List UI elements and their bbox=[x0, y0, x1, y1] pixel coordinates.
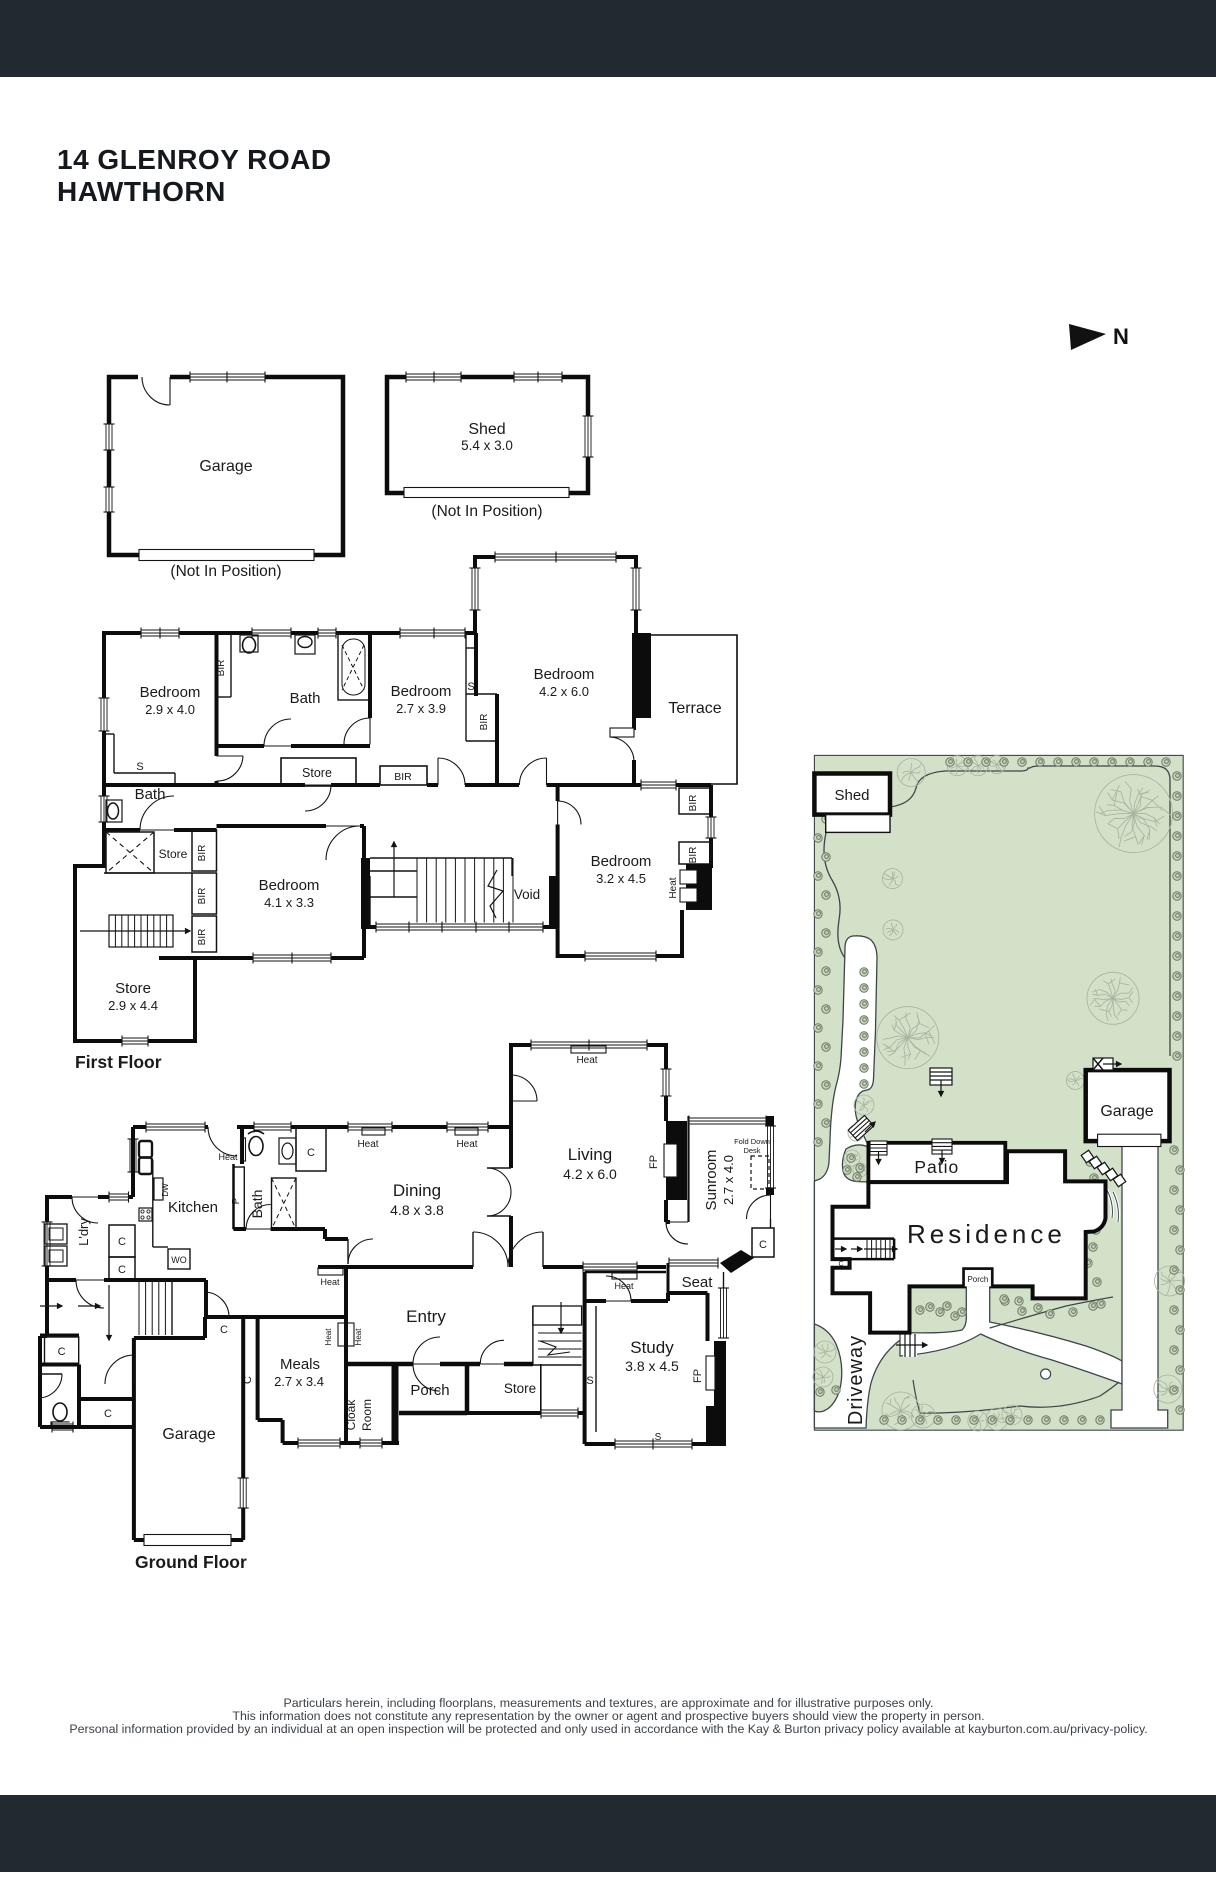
svg-text:Void: Void bbox=[514, 887, 540, 902]
svg-text:Heat: Heat bbox=[320, 1277, 340, 1287]
svg-text:Bedroom: Bedroom bbox=[591, 853, 652, 870]
svg-text:2.9 x 4.4: 2.9 x 4.4 bbox=[108, 998, 158, 1013]
svg-text:BIR: BIR bbox=[216, 660, 227, 677]
svg-text:Kitchen: Kitchen bbox=[168, 1199, 218, 1216]
svg-text:Seat: Seat bbox=[682, 1274, 714, 1291]
svg-text:Store: Store bbox=[302, 766, 332, 780]
svg-text:Driveway: Driveway bbox=[845, 1335, 867, 1425]
svg-text:First Floor: First Floor bbox=[75, 1052, 162, 1072]
svg-text:This information does not cons: This information does not constitute any… bbox=[232, 1709, 984, 1723]
svg-text:Garage: Garage bbox=[1100, 1103, 1153, 1120]
svg-text:4.8 x 3.8: 4.8 x 3.8 bbox=[390, 1202, 444, 1218]
svg-text:C: C bbox=[118, 1236, 126, 1248]
svg-text:Porch: Porch bbox=[967, 1275, 988, 1284]
svg-text:WO: WO bbox=[171, 1255, 187, 1265]
svg-text:C: C bbox=[838, 1261, 843, 1268]
svg-text:(Not In Position): (Not In Position) bbox=[170, 563, 281, 580]
svg-text:5.4 x 3.0: 5.4 x 3.0 bbox=[461, 438, 513, 453]
svg-text:2.7 x 3.4: 2.7 x 3.4 bbox=[274, 1374, 324, 1389]
svg-text:S: S bbox=[655, 1432, 662, 1443]
svg-text:Bedroom: Bedroom bbox=[140, 684, 201, 701]
svg-text:C: C bbox=[307, 1147, 315, 1159]
svg-text:Porch: Porch bbox=[410, 1382, 449, 1399]
svg-text:C: C bbox=[220, 1324, 228, 1336]
svg-text:BIR: BIR bbox=[197, 845, 208, 862]
svg-text:3.8 x 4.5: 3.8 x 4.5 bbox=[625, 1358, 679, 1374]
svg-text:4.2 x 6.0: 4.2 x 6.0 bbox=[563, 1166, 617, 1182]
svg-text:14 GLENROY ROAD: 14 GLENROY ROAD bbox=[57, 144, 332, 175]
svg-text:BIR: BIR bbox=[197, 929, 208, 946]
svg-text:Heat: Heat bbox=[614, 1281, 634, 1291]
svg-text:Heat: Heat bbox=[357, 1139, 378, 1150]
svg-text:Meals: Meals bbox=[280, 1356, 320, 1373]
svg-text:DW: DW bbox=[161, 1183, 170, 1197]
svg-text:Sunroom: Sunroom bbox=[703, 1150, 720, 1211]
svg-text:S: S bbox=[467, 681, 474, 693]
svg-text:2.9 x 4.0: 2.9 x 4.0 bbox=[145, 702, 195, 717]
svg-text:BIR: BIR bbox=[197, 888, 208, 905]
svg-text:FP: FP bbox=[692, 1369, 704, 1383]
svg-text:Garage: Garage bbox=[162, 1426, 215, 1443]
svg-text:Bedroom: Bedroom bbox=[534, 666, 595, 683]
svg-text:Heat: Heat bbox=[324, 1328, 333, 1346]
svg-text:BIR: BIR bbox=[479, 714, 490, 731]
svg-text:4.1 x 3.3: 4.1 x 3.3 bbox=[264, 895, 314, 910]
svg-text:Desk: Desk bbox=[743, 1146, 760, 1155]
svg-text:3.2 x 4.5: 3.2 x 4.5 bbox=[596, 871, 646, 886]
svg-text:HAWTHORN: HAWTHORN bbox=[57, 176, 226, 207]
svg-text:Living: Living bbox=[568, 1145, 612, 1164]
svg-text:BIR: BIR bbox=[688, 795, 699, 812]
svg-text:FP: FP bbox=[648, 1155, 660, 1169]
svg-text:Entry: Entry bbox=[406, 1307, 446, 1326]
svg-text:S: S bbox=[136, 761, 143, 773]
svg-text:Personal information provided: Personal information provided by an indi… bbox=[69, 1722, 1147, 1736]
svg-text:Ground Floor: Ground Floor bbox=[135, 1552, 247, 1572]
svg-text:Heat: Heat bbox=[668, 877, 679, 898]
svg-text:Bedroom: Bedroom bbox=[391, 683, 452, 700]
svg-text:Dining: Dining bbox=[393, 1181, 441, 1200]
svg-text:Shed: Shed bbox=[834, 787, 869, 804]
svg-text:(Not In Position): (Not In Position) bbox=[431, 503, 542, 520]
svg-text:Room: Room bbox=[360, 1399, 374, 1431]
svg-text:BIR: BIR bbox=[394, 771, 412, 783]
svg-text:C: C bbox=[759, 1239, 767, 1251]
svg-text:Particulars herein, including: Particulars herein, including floorplans… bbox=[284, 1696, 934, 1710]
svg-text:L'dry: L'dry bbox=[76, 1218, 91, 1246]
svg-text:Study: Study bbox=[630, 1338, 674, 1357]
svg-text:Terrace: Terrace bbox=[668, 700, 721, 717]
svg-text:2.7 x 3.9: 2.7 x 3.9 bbox=[396, 701, 446, 716]
svg-text:C: C bbox=[104, 1408, 112, 1420]
svg-text:Fold Down: Fold Down bbox=[734, 1137, 770, 1146]
svg-text:Heat: Heat bbox=[576, 1055, 597, 1066]
svg-text:N: N bbox=[1113, 324, 1129, 349]
svg-text:Residence: Residence bbox=[907, 1219, 1066, 1249]
svg-text:Store: Store bbox=[115, 980, 151, 997]
svg-text:Shed: Shed bbox=[468, 421, 505, 438]
svg-text:Bedroom: Bedroom bbox=[259, 877, 320, 894]
svg-text:BIR: BIR bbox=[688, 847, 699, 864]
svg-text:Heat: Heat bbox=[456, 1139, 477, 1150]
svg-text:C: C bbox=[58, 1346, 66, 1358]
svg-text:Store: Store bbox=[159, 847, 188, 861]
svg-text:Garage: Garage bbox=[199, 458, 252, 475]
svg-text:4.2 x 6.0: 4.2 x 6.0 bbox=[539, 684, 589, 699]
svg-text:Store: Store bbox=[504, 1381, 536, 1396]
svg-text:Patio: Patio bbox=[914, 1157, 959, 1177]
svg-text:C: C bbox=[118, 1264, 126, 1276]
svg-text:Heat: Heat bbox=[354, 1328, 363, 1346]
svg-text:S: S bbox=[586, 1375, 593, 1387]
svg-text:2.7 x 4.0: 2.7 x 4.0 bbox=[721, 1155, 736, 1205]
svg-text:Bath: Bath bbox=[290, 690, 321, 707]
svg-text:Heat: Heat bbox=[218, 1152, 238, 1162]
svg-text:Bath: Bath bbox=[135, 786, 166, 803]
